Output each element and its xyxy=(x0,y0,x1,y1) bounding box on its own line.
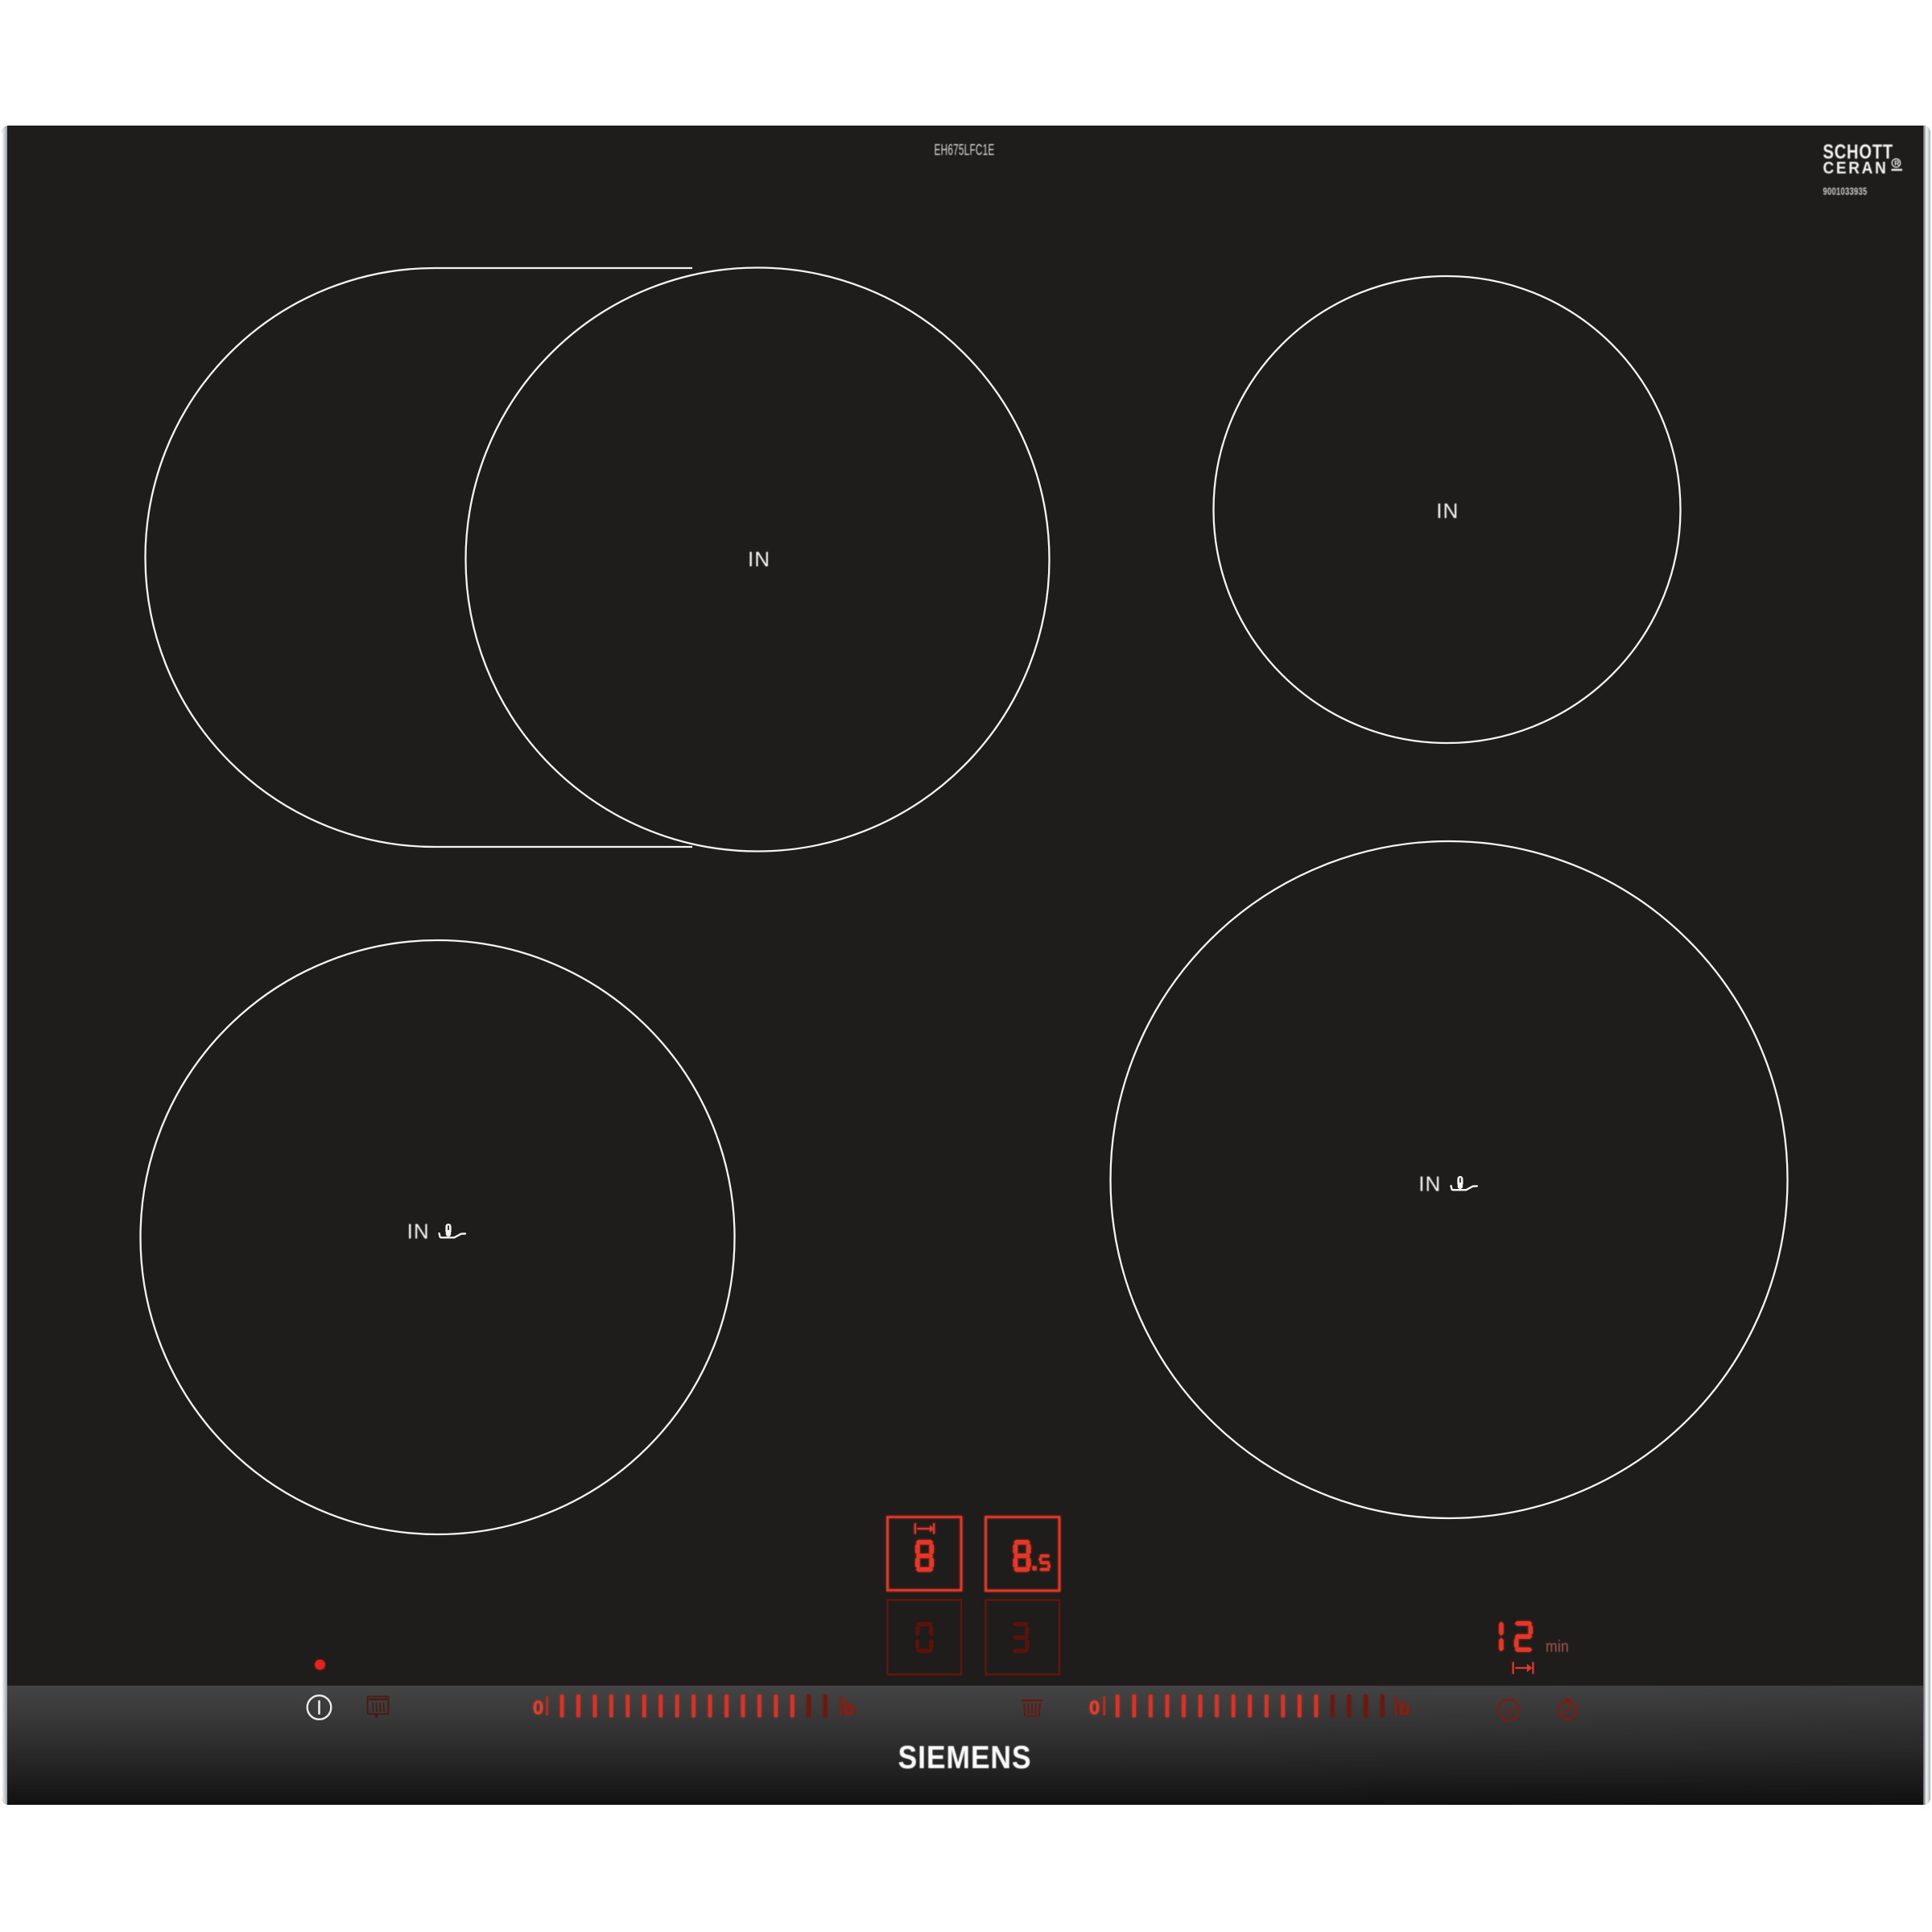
svg-text:b: b xyxy=(844,1698,855,1719)
svg-text:min: min xyxy=(1546,1638,1569,1656)
svg-text:IN: IN xyxy=(1418,1172,1441,1196)
svg-text:SIEMENS: SIEMENS xyxy=(898,1740,1032,1776)
svg-text:R: R xyxy=(1894,159,1899,167)
svg-text:IN: IN xyxy=(1436,498,1459,522)
svg-text:9001033935: 9001033935 xyxy=(1823,185,1868,197)
svg-text:IN: IN xyxy=(748,547,770,572)
svg-text:CERAN: CERAN xyxy=(1823,159,1889,178)
svg-text:IN: IN xyxy=(407,1220,430,1244)
svg-text:b: b xyxy=(1399,1698,1410,1719)
svg-text:0: 0 xyxy=(533,1698,543,1719)
svg-text:EH675LFC1E: EH675LFC1E xyxy=(935,142,995,159)
svg-text:0: 0 xyxy=(1089,1698,1100,1719)
